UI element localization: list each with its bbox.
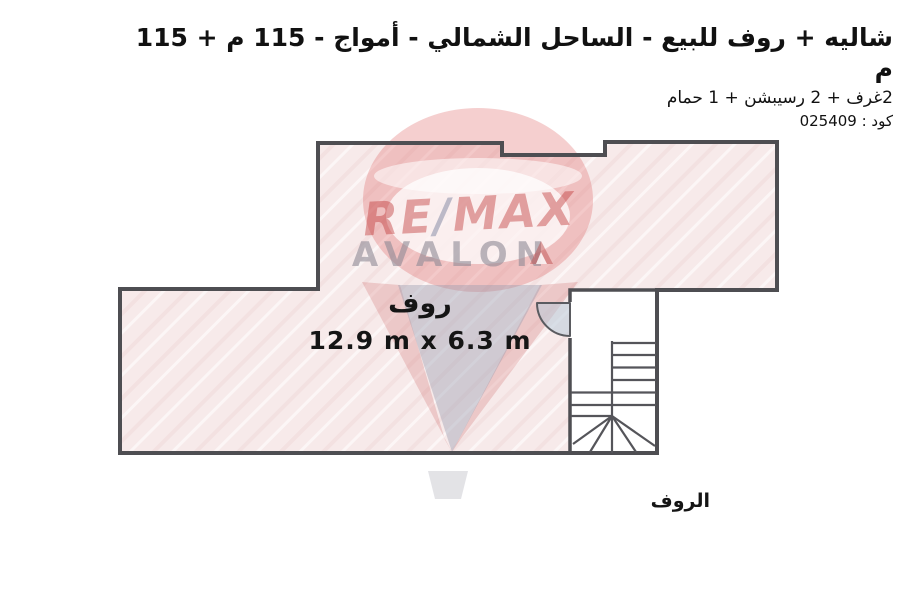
- floor-plan-page: RE/MAX AVALON شاليه + روف للبيع - الساحل…: [0, 0, 900, 599]
- balloon-basket: [428, 471, 468, 499]
- room-dimensions-label: 12.9 m x 6.3 m: [295, 326, 545, 355]
- listing-subtitle: 2غرف + 2 رسيبشن + 1 حمام: [120, 88, 893, 108]
- floor-label: الروف: [590, 490, 710, 512]
- stairwell: [570, 290, 657, 453]
- listing-code: كود : 025409: [120, 112, 893, 130]
- watermark-name-text: AVALON: [352, 235, 552, 275]
- listing-header: شاليه + روف للبيع - الساحل الشمالي - أمو…: [120, 22, 893, 130]
- listing-title: شاليه + روف للبيع - الساحل الشمالي - أمو…: [120, 22, 893, 85]
- room-label: روف: [330, 288, 510, 319]
